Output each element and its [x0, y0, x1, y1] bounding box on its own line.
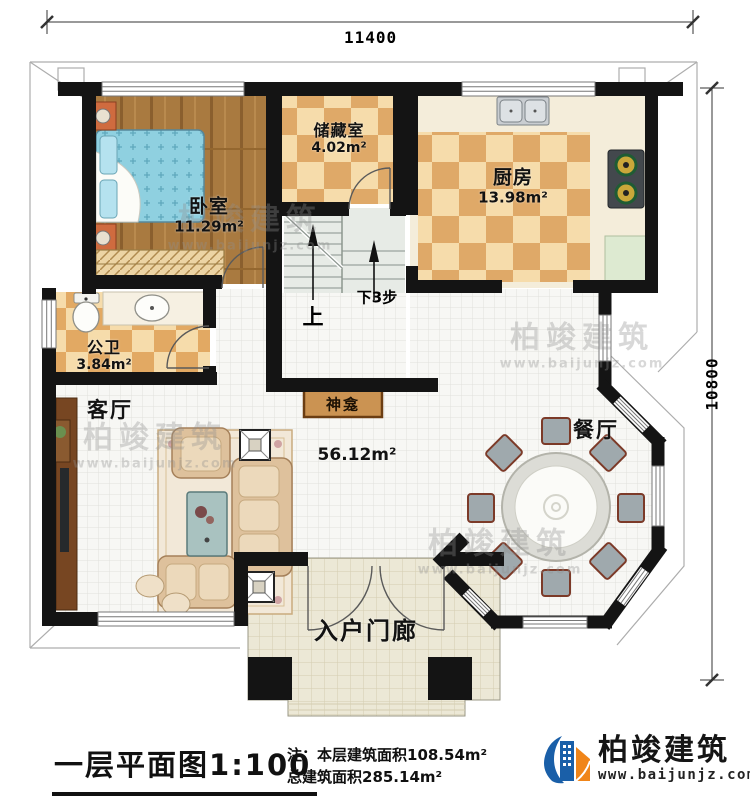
- dimension-top: 11400: [344, 28, 397, 47]
- living-area-value: 56.12m²: [318, 446, 397, 466]
- room-label-porch: 入户门廊: [314, 618, 418, 646]
- kitchen-floor: [418, 132, 590, 282]
- floor-plan-page: 柏竣建筑 www.baijunjz.com 柏竣建筑 www.baijunjz.…: [0, 0, 750, 801]
- stairs-up-label: 上: [303, 301, 324, 331]
- plan-note: 注：本层建筑面积108.54m² 总建筑面积285.14m²: [287, 744, 487, 788]
- plan-title: 一层平面图1:100: [52, 742, 317, 796]
- brand-block: 柏竣建筑 www.baijunjz.com: [598, 735, 750, 783]
- brand-website: www.baijunjz.com: [598, 767, 750, 783]
- note-line-2: 总建筑面积285.14m²: [287, 766, 487, 788]
- room-label-dining: 餐厅: [573, 418, 619, 442]
- brand-name: 柏竣建筑: [598, 735, 750, 767]
- room-label-kitchen: 厨房 13.98m²: [478, 167, 548, 206]
- dimension-right: 10800: [703, 357, 722, 410]
- stove: [608, 150, 644, 208]
- shrine-label: 神龛: [326, 394, 360, 415]
- note-line-1: 注：本层建筑面积108.54m²: [287, 744, 487, 766]
- kitchen-sink: [497, 97, 549, 125]
- stairs-down-label: 下3步: [357, 287, 397, 308]
- room-label-storage: 储藏室 4.02m²: [311, 122, 366, 156]
- porch-pillar-left: [248, 657, 292, 700]
- porch-pillar-right: [428, 657, 472, 700]
- dining-set: [468, 418, 644, 596]
- fridge: [605, 236, 648, 284]
- wardrobe: [96, 250, 224, 278]
- room-label-living: 客厅: [87, 398, 133, 422]
- room-label-bathroom: 公卫 3.84m²: [76, 339, 131, 373]
- brand-logo-icon: [544, 736, 590, 783]
- room-label-bedroom: 卧室 11.29m²: [174, 196, 244, 235]
